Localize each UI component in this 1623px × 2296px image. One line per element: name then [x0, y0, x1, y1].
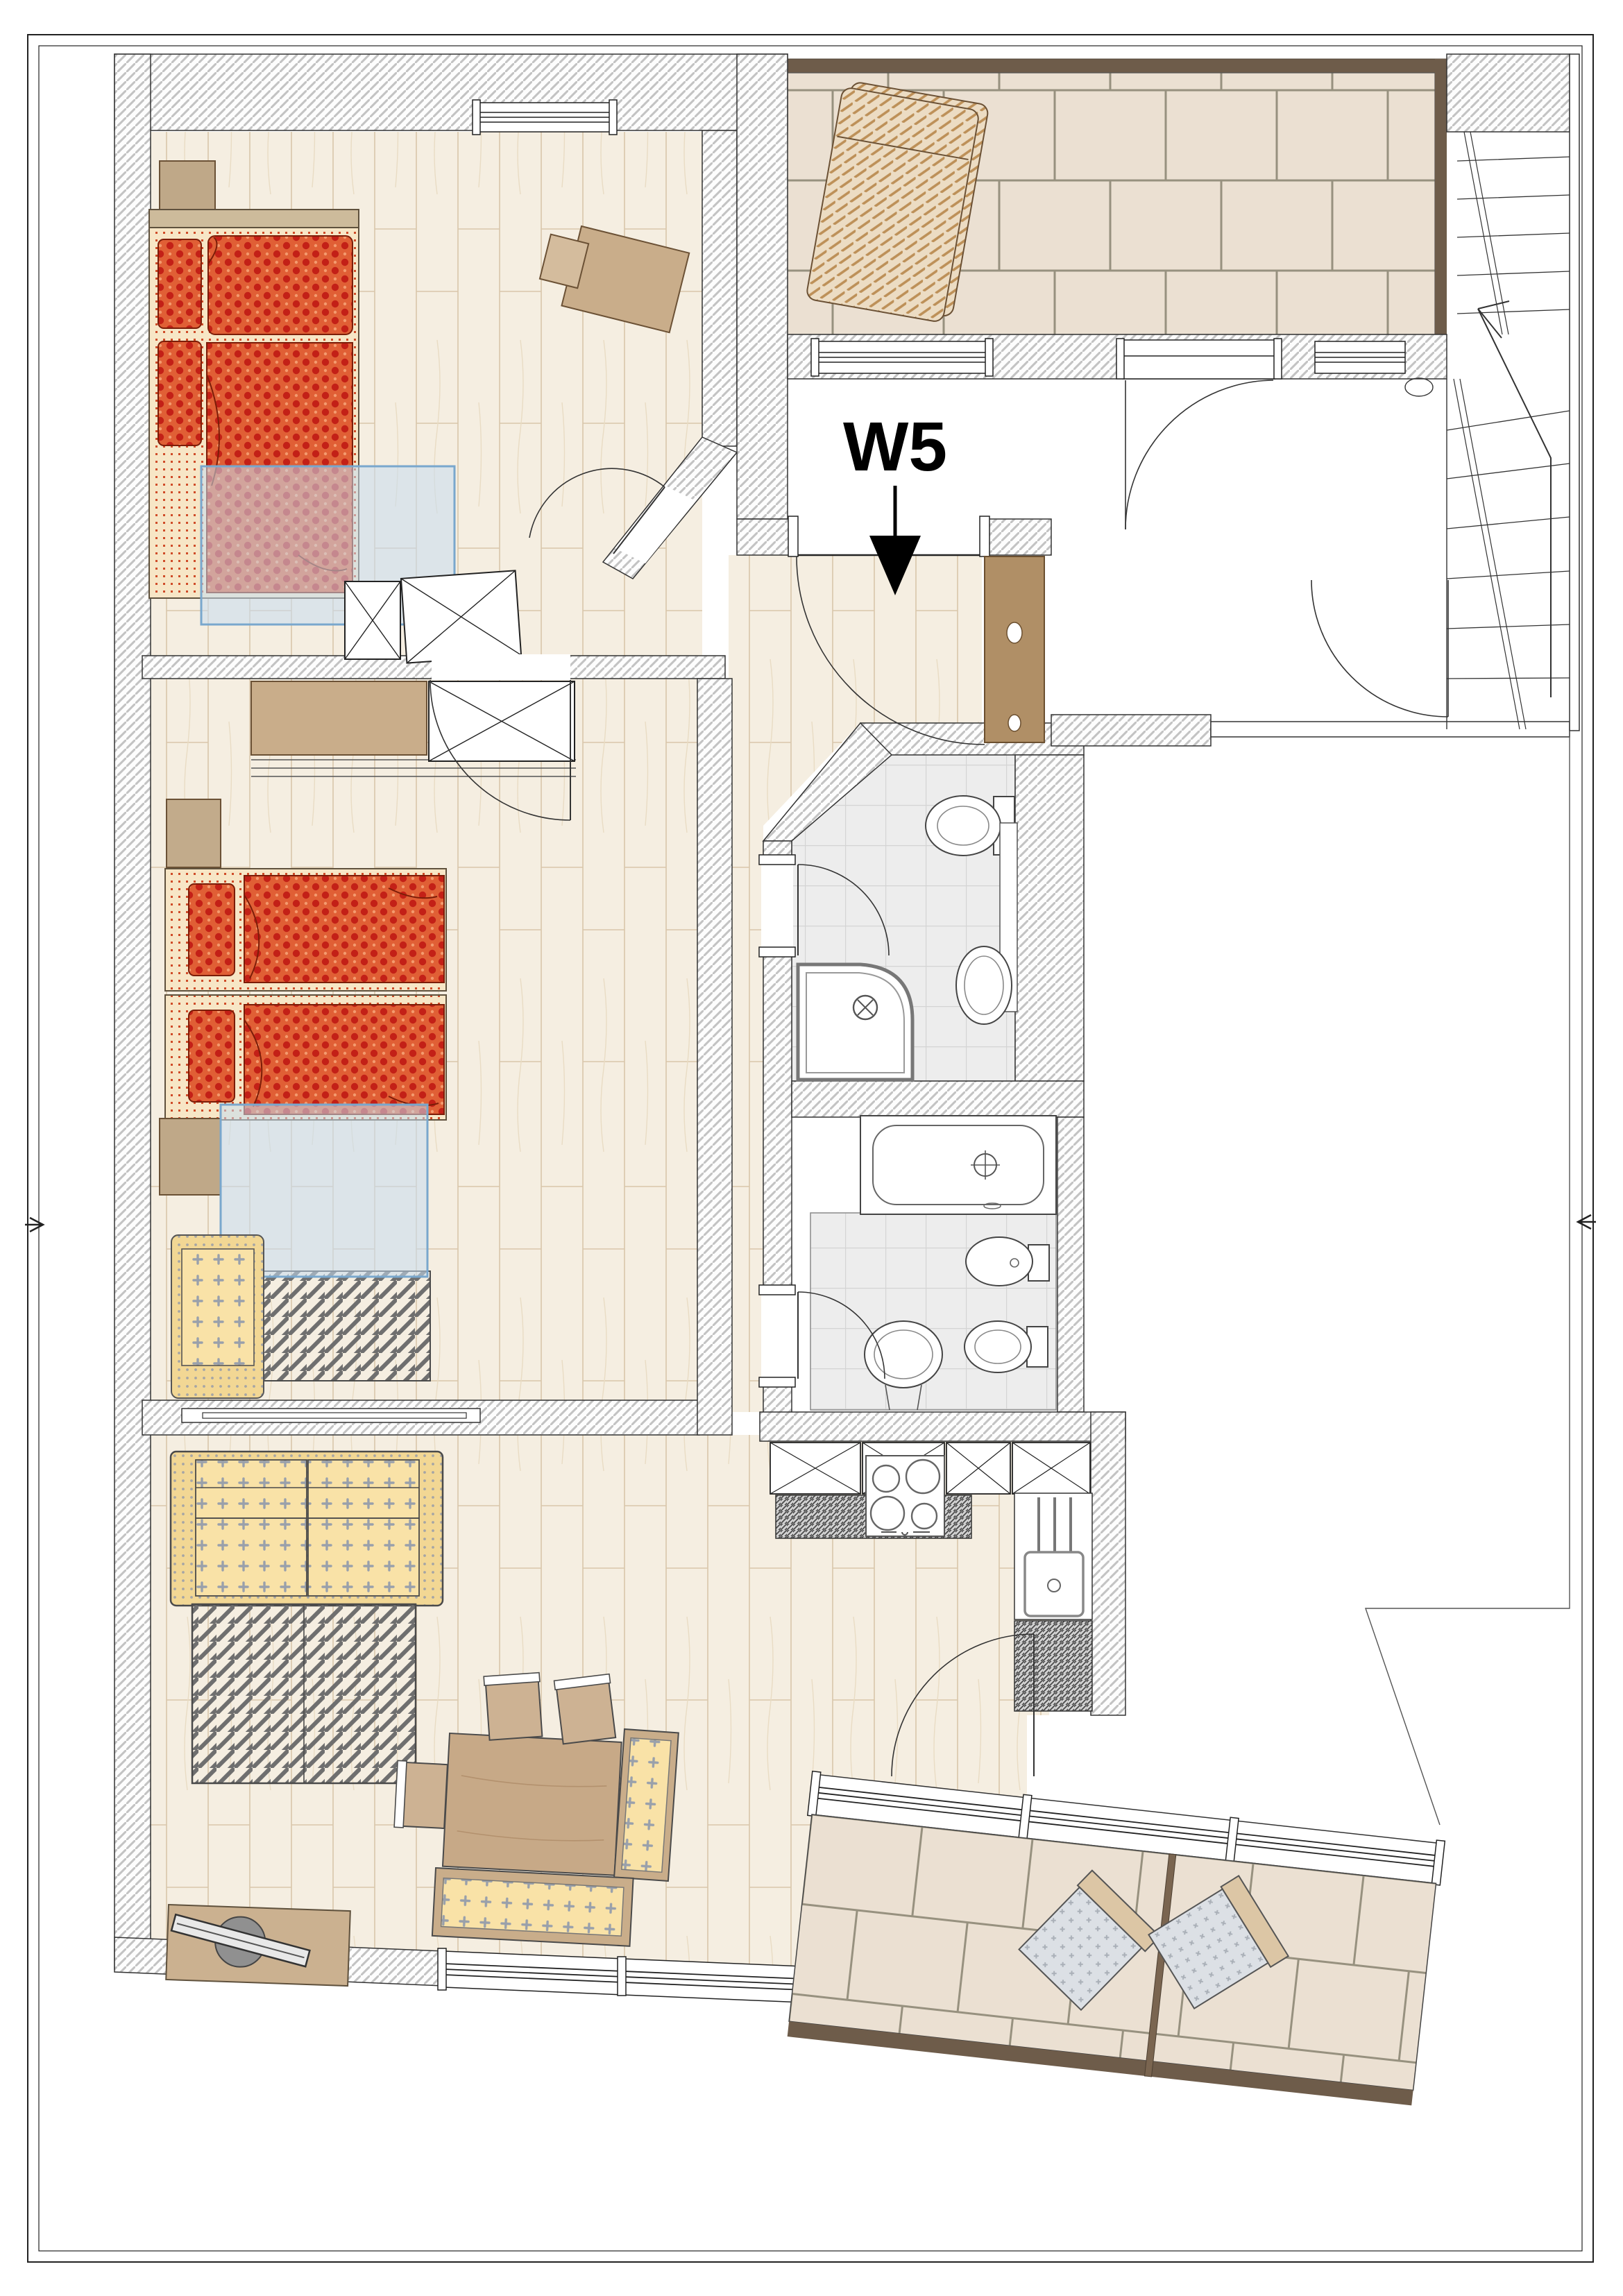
corridor-door-swing-1	[1125, 380, 1273, 529]
pillow	[208, 236, 352, 334]
single-bed-2	[165, 995, 446, 1120]
pillow	[189, 884, 235, 976]
terrace-door-opening	[1116, 339, 1282, 379]
dining-bench-bottom	[432, 1868, 634, 1946]
void-outline	[1366, 731, 1570, 1825]
bedroom1-wardrobes	[345, 570, 521, 663]
stove	[866, 1456, 944, 1536]
dining-chair-3	[394, 1760, 448, 1830]
sliding-door-bed2	[182, 1409, 480, 1422]
wall-hall-top-right	[982, 519, 1051, 555]
stair-treads-upper	[1457, 132, 1570, 334]
bedroom2-nightstand	[160, 1119, 221, 1195]
bedroom2-desk	[251, 681, 427, 755]
bathtub	[860, 1116, 1056, 1214]
wall-hall-top-left	[737, 519, 797, 555]
duvet	[244, 1005, 444, 1114]
wall-stair-top	[1447, 54, 1570, 132]
terrace-window-1	[811, 339, 993, 376]
sofa	[171, 1452, 443, 1606]
bedroom2-shelf	[167, 799, 221, 867]
armchair	[171, 1235, 264, 1398]
kitchen-sink	[1014, 1493, 1092, 1619]
bidet	[966, 1237, 1049, 1286]
wall-bed1-right	[702, 130, 737, 446]
bedroom1-top-window	[473, 100, 617, 135]
pillow	[158, 239, 201, 328]
terrace-top	[788, 59, 1447, 334]
wall-kitchen-top	[760, 1412, 1125, 1441]
pillow	[189, 1010, 235, 1102]
balcony-bottom	[783, 1771, 1445, 2106]
toilet-2	[965, 1321, 1048, 1372]
rug-living	[192, 1604, 416, 1783]
dining-chair-2	[554, 1674, 618, 1744]
shower	[798, 964, 912, 1080]
tv-sideboard	[166, 1905, 350, 1986]
unit-label: W5	[843, 408, 947, 486]
dining-table	[443, 1733, 622, 1876]
wall-bath-top	[860, 723, 1084, 755]
wall-void-line	[1211, 722, 1570, 737]
wall-kitchen-right	[1091, 1412, 1125, 1715]
stair-detail-circle	[1405, 378, 1433, 396]
pillow	[158, 341, 201, 445]
wall-bath2-right	[1057, 1117, 1084, 1412]
duvet	[244, 876, 444, 983]
terrace-window-2	[1315, 341, 1405, 373]
washbasin-1	[956, 946, 1012, 1024]
single-bed-1	[165, 869, 446, 991]
corridor-door-swing-2	[1311, 580, 1448, 717]
wall-top	[114, 54, 788, 130]
dining-bench-right	[614, 1729, 679, 1881]
wall-terrace-left	[737, 54, 788, 519]
wall-bath-right	[1015, 755, 1084, 1081]
wall-left	[114, 54, 151, 1969]
stair-direction-arrow-icon	[1478, 301, 1551, 697]
wall-bed2-right	[697, 679, 732, 1435]
dining-chair-1	[484, 1673, 543, 1740]
bedroom2-wardrobe	[429, 681, 575, 761]
stairwell-right-wall	[1570, 54, 1579, 731]
wall-corridor-bottom	[1051, 715, 1211, 746]
wall-between-baths	[792, 1081, 1084, 1117]
corridor-doors	[1125, 380, 1448, 717]
floor-plan-canvas: W5	[0, 0, 1623, 2296]
